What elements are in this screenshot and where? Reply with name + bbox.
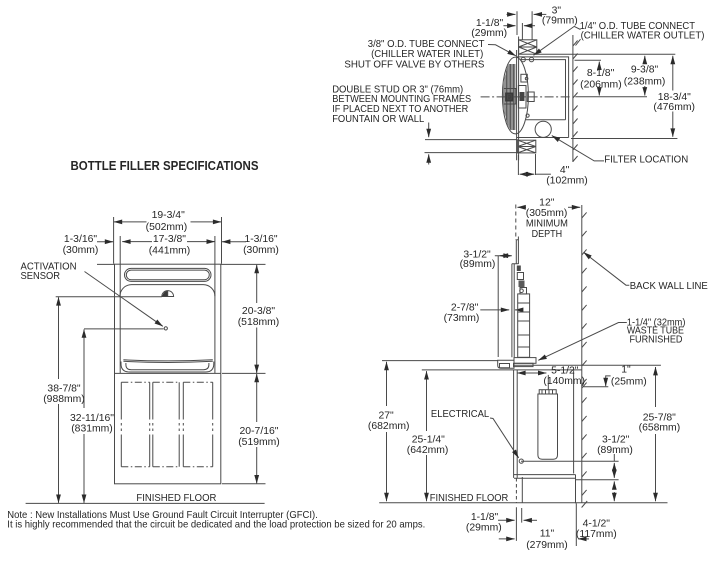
svg-text:1-3/16": 1-3/16"	[64, 234, 97, 245]
svg-text:(102mm): (102mm)	[546, 175, 588, 186]
svg-text:FURNISHED: FURNISHED	[630, 335, 683, 346]
svg-text:27": 27"	[378, 410, 394, 421]
svg-text:FOUNTAIN OR WALL: FOUNTAIN OR WALL	[332, 114, 424, 125]
svg-text:(441mm): (441mm)	[149, 246, 191, 257]
svg-text:It is highly recommended that: It is highly recommended that the circui…	[7, 520, 425, 531]
svg-text:BOTTLE FILLER SPECIFICATIONS: BOTTLE FILLER SPECIFICATIONS	[71, 159, 259, 173]
svg-text:38-7/8": 38-7/8"	[47, 383, 80, 394]
svg-text:(140mm): (140mm)	[543, 376, 585, 387]
svg-text:25-1/4": 25-1/4"	[412, 434, 445, 445]
svg-text:SHUT OFF VALVE BY OTHERS: SHUT OFF VALVE BY OTHERS	[344, 60, 484, 71]
svg-text:(642mm): (642mm)	[407, 445, 449, 456]
svg-text:ELECTRICAL: ELECTRICAL	[431, 409, 489, 420]
svg-text:(502mm): (502mm)	[146, 222, 188, 233]
svg-text:2-7/8": 2-7/8"	[451, 302, 479, 313]
svg-text:(29mm): (29mm)	[471, 28, 507, 39]
svg-text:20-3/8": 20-3/8"	[242, 306, 275, 317]
svg-text:3-1/2": 3-1/2"	[602, 435, 630, 446]
svg-text:(658mm): (658mm)	[639, 423, 681, 434]
svg-text:(238mm): (238mm)	[624, 77, 666, 88]
svg-text:(682mm): (682mm)	[368, 421, 410, 432]
svg-text:20-7/16": 20-7/16"	[240, 426, 279, 437]
svg-text:FINISHED FLOOR: FINISHED FLOOR	[430, 493, 509, 504]
svg-text:BACK WALL LINE: BACK WALL LINE	[630, 281, 708, 292]
svg-text:(279mm): (279mm)	[526, 540, 568, 551]
svg-text:1-1/8": 1-1/8"	[471, 512, 499, 523]
svg-text:(519mm): (519mm)	[238, 437, 280, 448]
svg-text:1": 1"	[621, 365, 631, 376]
svg-text:17-3/8": 17-3/8"	[153, 234, 186, 245]
svg-text:32-11/16": 32-11/16"	[70, 413, 114, 424]
svg-text:12": 12"	[539, 197, 555, 208]
svg-text:11": 11"	[540, 529, 555, 540]
svg-text:8-1/8": 8-1/8"	[587, 68, 615, 79]
svg-text:19-3/4": 19-3/4"	[152, 210, 185, 221]
svg-text:(73mm): (73mm)	[444, 313, 480, 324]
svg-text:5-1/2": 5-1/2"	[551, 365, 579, 376]
svg-text:4": 4"	[560, 165, 570, 176]
svg-text:(30mm): (30mm)	[243, 245, 279, 256]
svg-text:SENSOR: SENSOR	[21, 271, 61, 282]
svg-text:(89mm): (89mm)	[597, 445, 633, 456]
svg-text:(476mm): (476mm)	[653, 102, 695, 113]
svg-text:1-3/16": 1-3/16"	[244, 234, 277, 245]
svg-text:(30mm): (30mm)	[63, 245, 99, 256]
svg-text:(25mm): (25mm)	[611, 376, 647, 387]
svg-text:(831mm): (831mm)	[71, 424, 113, 435]
svg-text:9-3/8": 9-3/8"	[631, 64, 659, 75]
svg-text:FILTER LOCATION: FILTER LOCATION	[604, 154, 688, 165]
svg-text:(29mm): (29mm)	[466, 522, 502, 533]
svg-text:(89mm): (89mm)	[460, 259, 496, 270]
svg-text:(305mm): (305mm)	[526, 208, 568, 219]
svg-text:(988mm): (988mm)	[43, 394, 85, 405]
svg-text:(79mm): (79mm)	[542, 15, 578, 26]
svg-text:(518mm): (518mm)	[238, 317, 280, 328]
svg-text:FINISHED FLOOR: FINISHED FLOOR	[136, 493, 216, 504]
svg-text:18-3/4": 18-3/4"	[658, 92, 691, 103]
svg-text:4-1/2": 4-1/2"	[583, 519, 611, 530]
svg-text:DEPTH: DEPTH	[532, 229, 563, 240]
svg-text:(CHILLER WATER OUTLET): (CHILLER WATER OUTLET)	[581, 30, 705, 41]
svg-text:(206mm): (206mm)	[580, 80, 622, 91]
